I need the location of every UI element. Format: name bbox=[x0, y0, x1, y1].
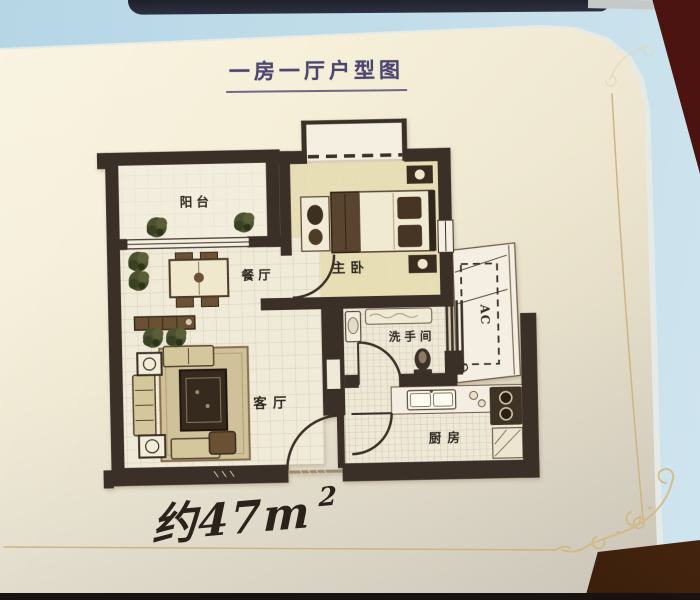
armchair bbox=[209, 432, 236, 455]
end-table bbox=[139, 435, 166, 458]
photo-of-floorplan-page: 一房一厅户型图 bbox=[0, 0, 700, 600]
bed bbox=[359, 190, 435, 252]
room-label-living: 客厅 bbox=[252, 394, 293, 412]
bathtub bbox=[365, 308, 432, 324]
entry-threshold bbox=[288, 469, 342, 473]
floor-plan: AC bbox=[94, 101, 564, 503]
entrance-door-leaf bbox=[337, 413, 344, 467]
room-label-ac: AC bbox=[478, 303, 492, 325]
photo-bottom-edge bbox=[0, 593, 700, 600]
photo-top-object bbox=[128, 0, 610, 15]
area-superscript: 2 bbox=[318, 482, 339, 514]
pillow bbox=[397, 197, 422, 220]
end-table bbox=[137, 353, 162, 376]
tv-cabinet bbox=[134, 316, 195, 330]
room-label-kitchen: 厨房 bbox=[429, 430, 466, 446]
room-label-balcony: 阳台 bbox=[180, 194, 213, 210]
page-title: 一房一厅户型图 bbox=[226, 54, 407, 93]
room-label-dining: 餐厅 bbox=[241, 267, 274, 283]
pillow bbox=[398, 225, 423, 248]
room-label-bathroom: 洗手间 bbox=[389, 329, 436, 344]
headboard bbox=[428, 190, 436, 250]
room-label-bedroom: 主卧 bbox=[332, 259, 369, 277]
